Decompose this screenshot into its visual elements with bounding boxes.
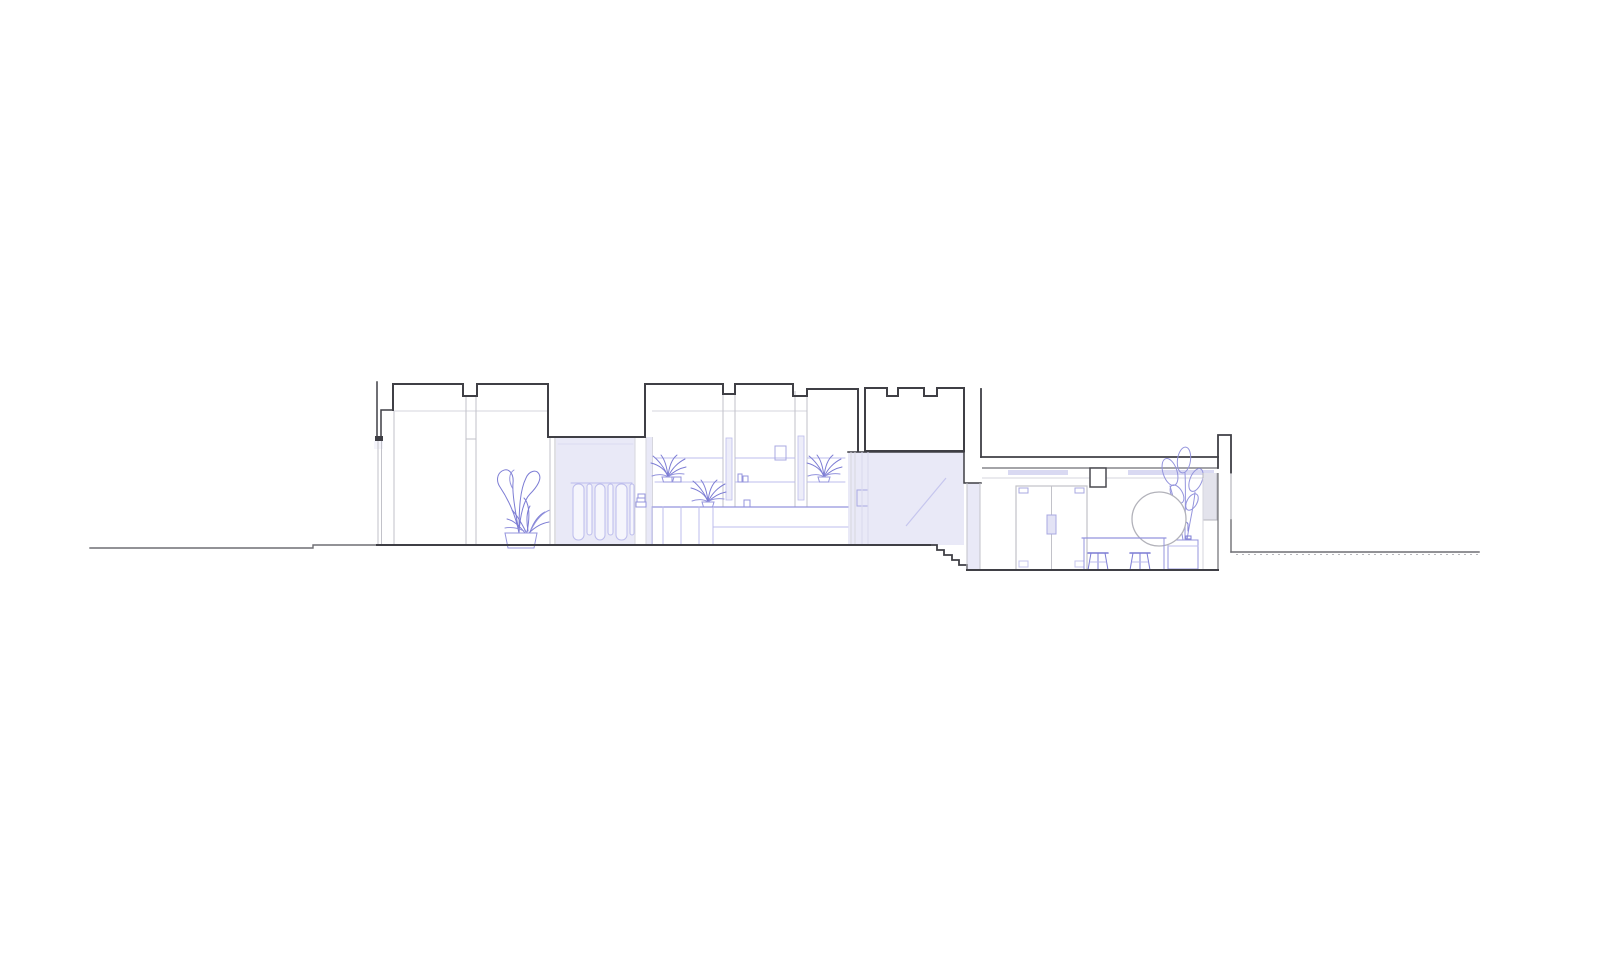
right-wing	[967, 435, 1231, 570]
stool-2	[1130, 553, 1150, 570]
spider-plant-3	[807, 455, 842, 482]
glazed-partition-fill	[848, 452, 964, 545]
stool-1	[1088, 553, 1108, 570]
glazing-fills	[374, 437, 980, 570]
double-door	[1016, 486, 1087, 570]
floor-slabs	[377, 545, 1218, 570]
column-fin-3	[795, 391, 807, 507]
column-fin-1	[466, 396, 476, 545]
base-cabinets	[652, 507, 699, 545]
slatted-screen-door	[573, 484, 634, 540]
terrain-left	[90, 545, 377, 548]
drawing-page	[0, 0, 1600, 960]
lower-wall-strip	[967, 483, 980, 570]
door-handle	[1047, 515, 1056, 534]
party-wall	[964, 389, 981, 483]
middle-wing	[636, 391, 868, 545]
ceiling-beam	[1090, 468, 1106, 487]
ceiling-light-1	[1008, 470, 1068, 475]
terrain-right	[1231, 552, 1479, 555]
rooflight-box	[865, 388, 964, 451]
plant-pot-right	[1168, 540, 1198, 569]
ceiling-light-2	[1128, 470, 1214, 475]
left-wing	[375, 382, 550, 548]
wall-window	[1203, 473, 1218, 520]
spider-plant-2	[691, 480, 726, 507]
bird-of-paradise-plant	[498, 470, 550, 548]
right-perimeter-wall	[1203, 435, 1231, 570]
stairs-down	[930, 545, 967, 570]
section-drawing-canvas	[0, 0, 1600, 960]
boundary-wall	[375, 382, 393, 441]
